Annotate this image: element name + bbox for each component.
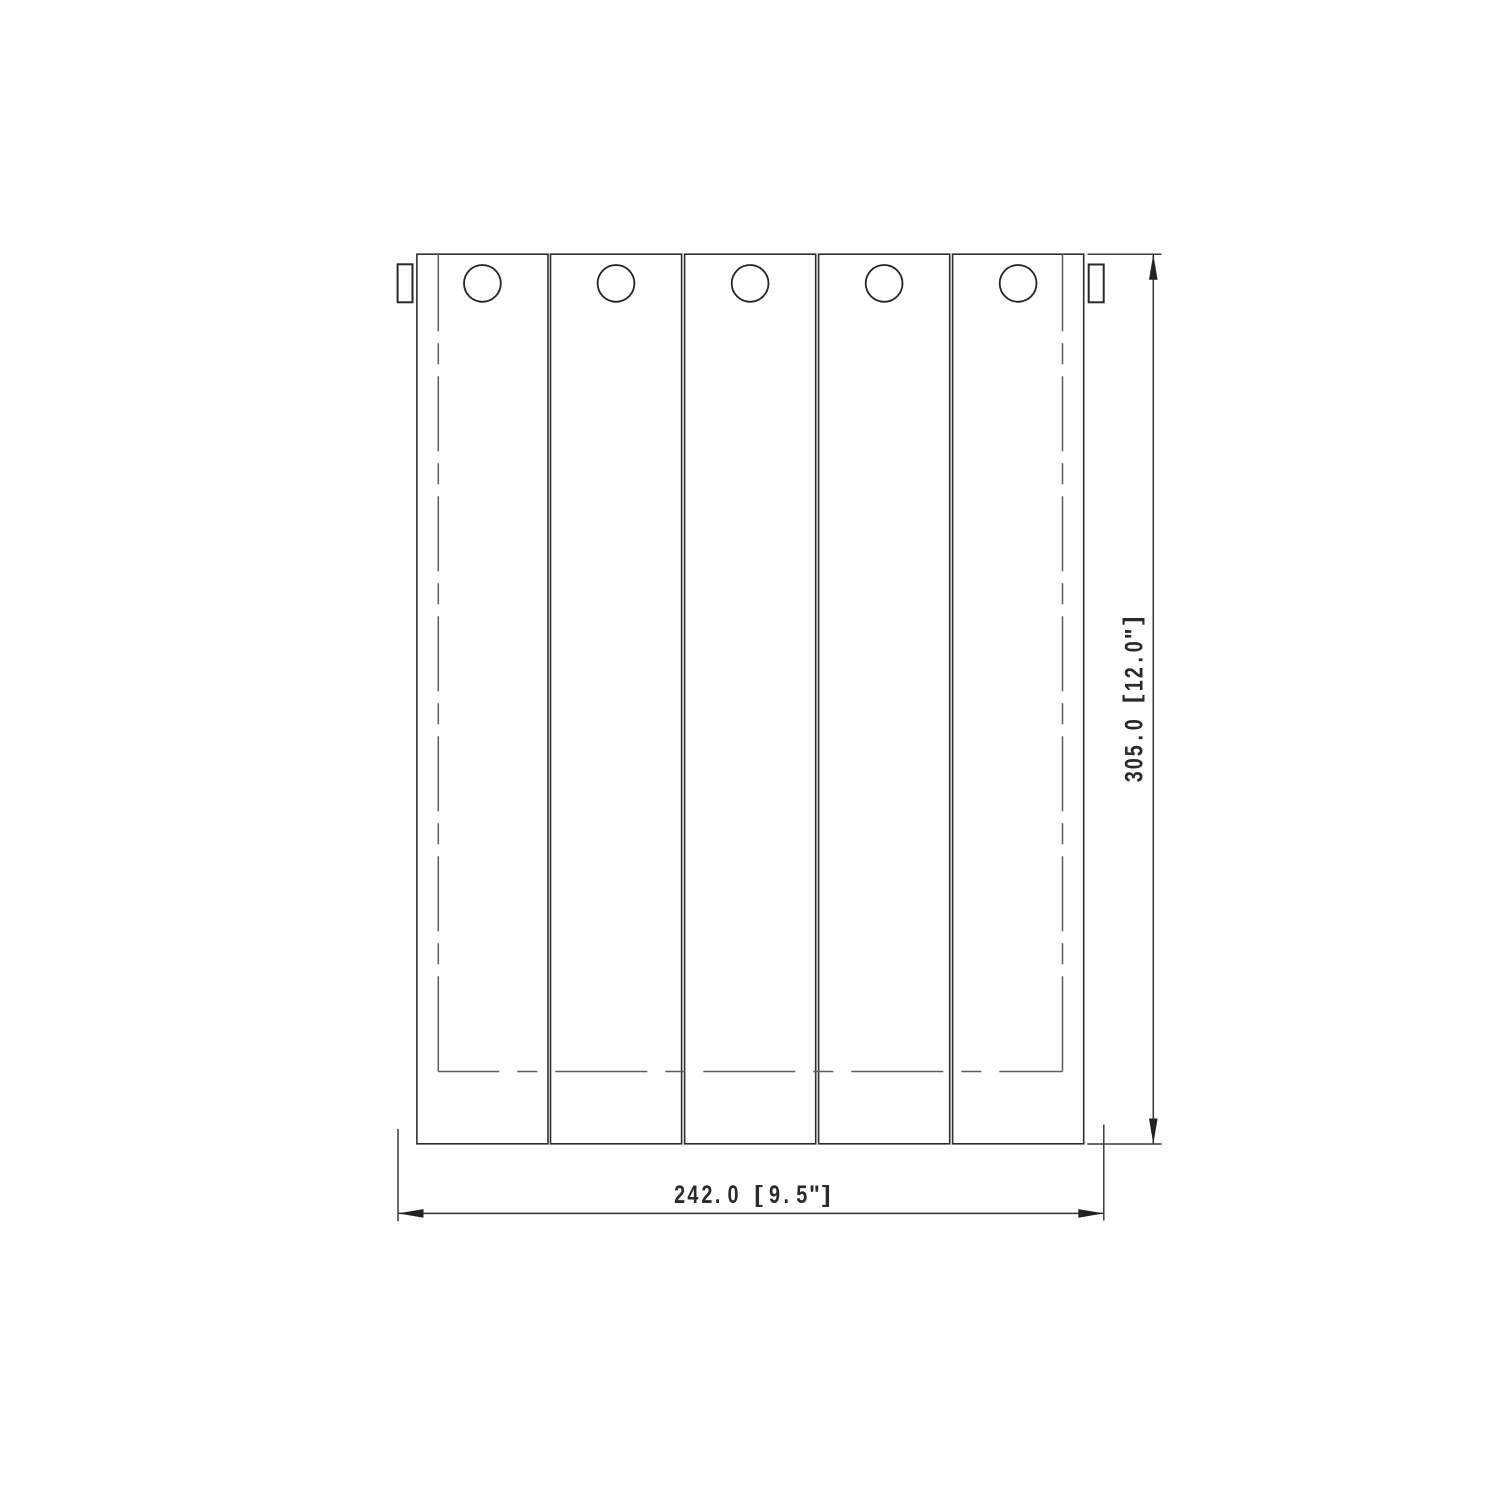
svg-text:5: 5 <box>796 1180 807 1209</box>
svg-text:0: 0 <box>727 1180 738 1209</box>
svg-text:[: [ <box>1120 694 1146 703</box>
svg-text:2: 2 <box>1119 667 1148 678</box>
svg-text:.: . <box>1119 657 1148 663</box>
svg-text:0: 0 <box>1119 719 1148 730</box>
svg-text:2: 2 <box>674 1180 685 1209</box>
svg-text:]: ] <box>1120 616 1146 625</box>
svg-text:3: 3 <box>1119 771 1148 782</box>
svg-text:0: 0 <box>1119 641 1148 652</box>
svg-text:9: 9 <box>769 1180 780 1209</box>
svg-text:0: 0 <box>1119 758 1148 769</box>
svg-text:.: . <box>784 1180 790 1209</box>
svg-text:[: [ <box>754 1182 763 1208</box>
svg-text:]: ] <box>822 1182 831 1208</box>
svg-text:.: . <box>1119 735 1148 741</box>
svg-text:5: 5 <box>1119 745 1148 756</box>
svg-text:": " <box>1120 628 1148 639</box>
svg-text:.: . <box>715 1180 721 1209</box>
svg-text:1: 1 <box>1119 680 1148 691</box>
svg-text:4: 4 <box>687 1180 698 1209</box>
svg-text:2: 2 <box>701 1180 712 1209</box>
svg-text:": " <box>809 1181 820 1209</box>
